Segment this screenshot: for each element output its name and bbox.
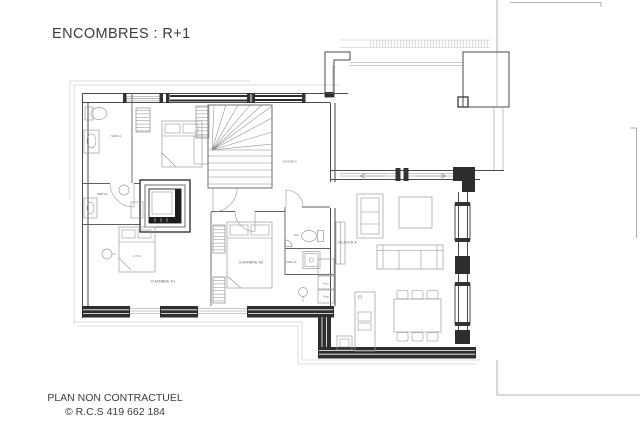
sliding-door-arrow-left	[360, 174, 386, 178]
building-outline-offsets	[70, 81, 480, 364]
tall-cabinet	[355, 292, 375, 351]
room-label-sde-a2: SDE A2	[286, 260, 297, 264]
dining-chair	[397, 291, 408, 300]
sofa	[377, 245, 443, 269]
coffee-table	[399, 197, 432, 228]
room-label-sejour: SEJOUR A	[338, 241, 357, 245]
exterior-walls	[82, 93, 476, 359]
window-top-2	[170, 96, 247, 101]
staircase	[208, 105, 272, 188]
wardrobe-1	[136, 108, 150, 132]
room-label-sdb-a2: SDB A2	[97, 192, 108, 196]
corner-basin-wc	[286, 240, 293, 247]
bed-chambre-a1	[119, 227, 155, 272]
wardrobe-4	[213, 277, 225, 303]
dining-chair	[427, 333, 438, 342]
terrace	[325, 40, 509, 170]
sliding-door-arrow-right	[416, 174, 446, 178]
window-bottom-1	[130, 309, 160, 314]
site-boundary-lines	[497, 0, 640, 395]
floor-plan-drawing: SDB A1 SDB A2 CHAMBRE A1 CHAMBRE A2 LIT …	[0, 0, 640, 443]
room-label-sdb-a1: SDB A1	[111, 134, 122, 138]
stool-chambre-a1	[102, 249, 116, 259]
dining-chair	[412, 333, 423, 342]
window-top-1	[126, 97, 160, 101]
terrace-left-pillar	[325, 52, 350, 97]
dining-chair	[427, 291, 438, 300]
footer-rcs-number: © R.C.S 419 662 184	[40, 405, 190, 419]
door-arc-chambre-a2	[235, 212, 255, 232]
sejour-walls	[330, 167, 504, 344]
kitchen-sink	[299, 288, 308, 297]
dining-chair	[397, 333, 408, 342]
window-top-3	[255, 96, 302, 100]
shower-sde-a2	[303, 252, 320, 269]
dining-chair	[412, 291, 423, 300]
bed-label: LIT A1	[133, 254, 141, 258]
washbasin-sdb-a1	[84, 130, 99, 153]
toilet-wc	[286, 231, 324, 247]
sejour-corner-pillar	[453, 167, 475, 192]
elevator	[140, 180, 190, 232]
duct-box	[194, 136, 208, 164]
dining-table	[394, 291, 441, 342]
bed-chambre-a2	[227, 222, 272, 288]
footer: PLAN NON CONTRACTUEL © R.C.S 419 662 184	[40, 391, 190, 419]
door-arc-wc	[286, 190, 303, 207]
room-label-cuisine: CUISINE A	[282, 160, 297, 164]
door-arc-sdb-a2	[110, 184, 134, 208]
room-label-chambre-a1: CHAMBRE A1	[151, 280, 176, 284]
armchair	[357, 194, 383, 238]
appliance-label-oven: Four	[323, 282, 329, 286]
wardrobe-3	[213, 225, 225, 253]
roof-hatch-strip	[368, 40, 488, 47]
door-arc-hall	[213, 188, 237, 212]
kitchen-units	[299, 222, 346, 303]
terrace-right-pillar	[463, 52, 509, 107]
appliance-label-fridge: Frigo	[323, 295, 330, 299]
footer-disclaimer: PLAN NON CONTRACTUEL	[40, 391, 190, 405]
room-label-chambre-a2: CHAMBRE A2	[239, 261, 264, 265]
room-label-wc: WC	[294, 233, 300, 237]
window-bottom-2	[198, 309, 247, 314]
